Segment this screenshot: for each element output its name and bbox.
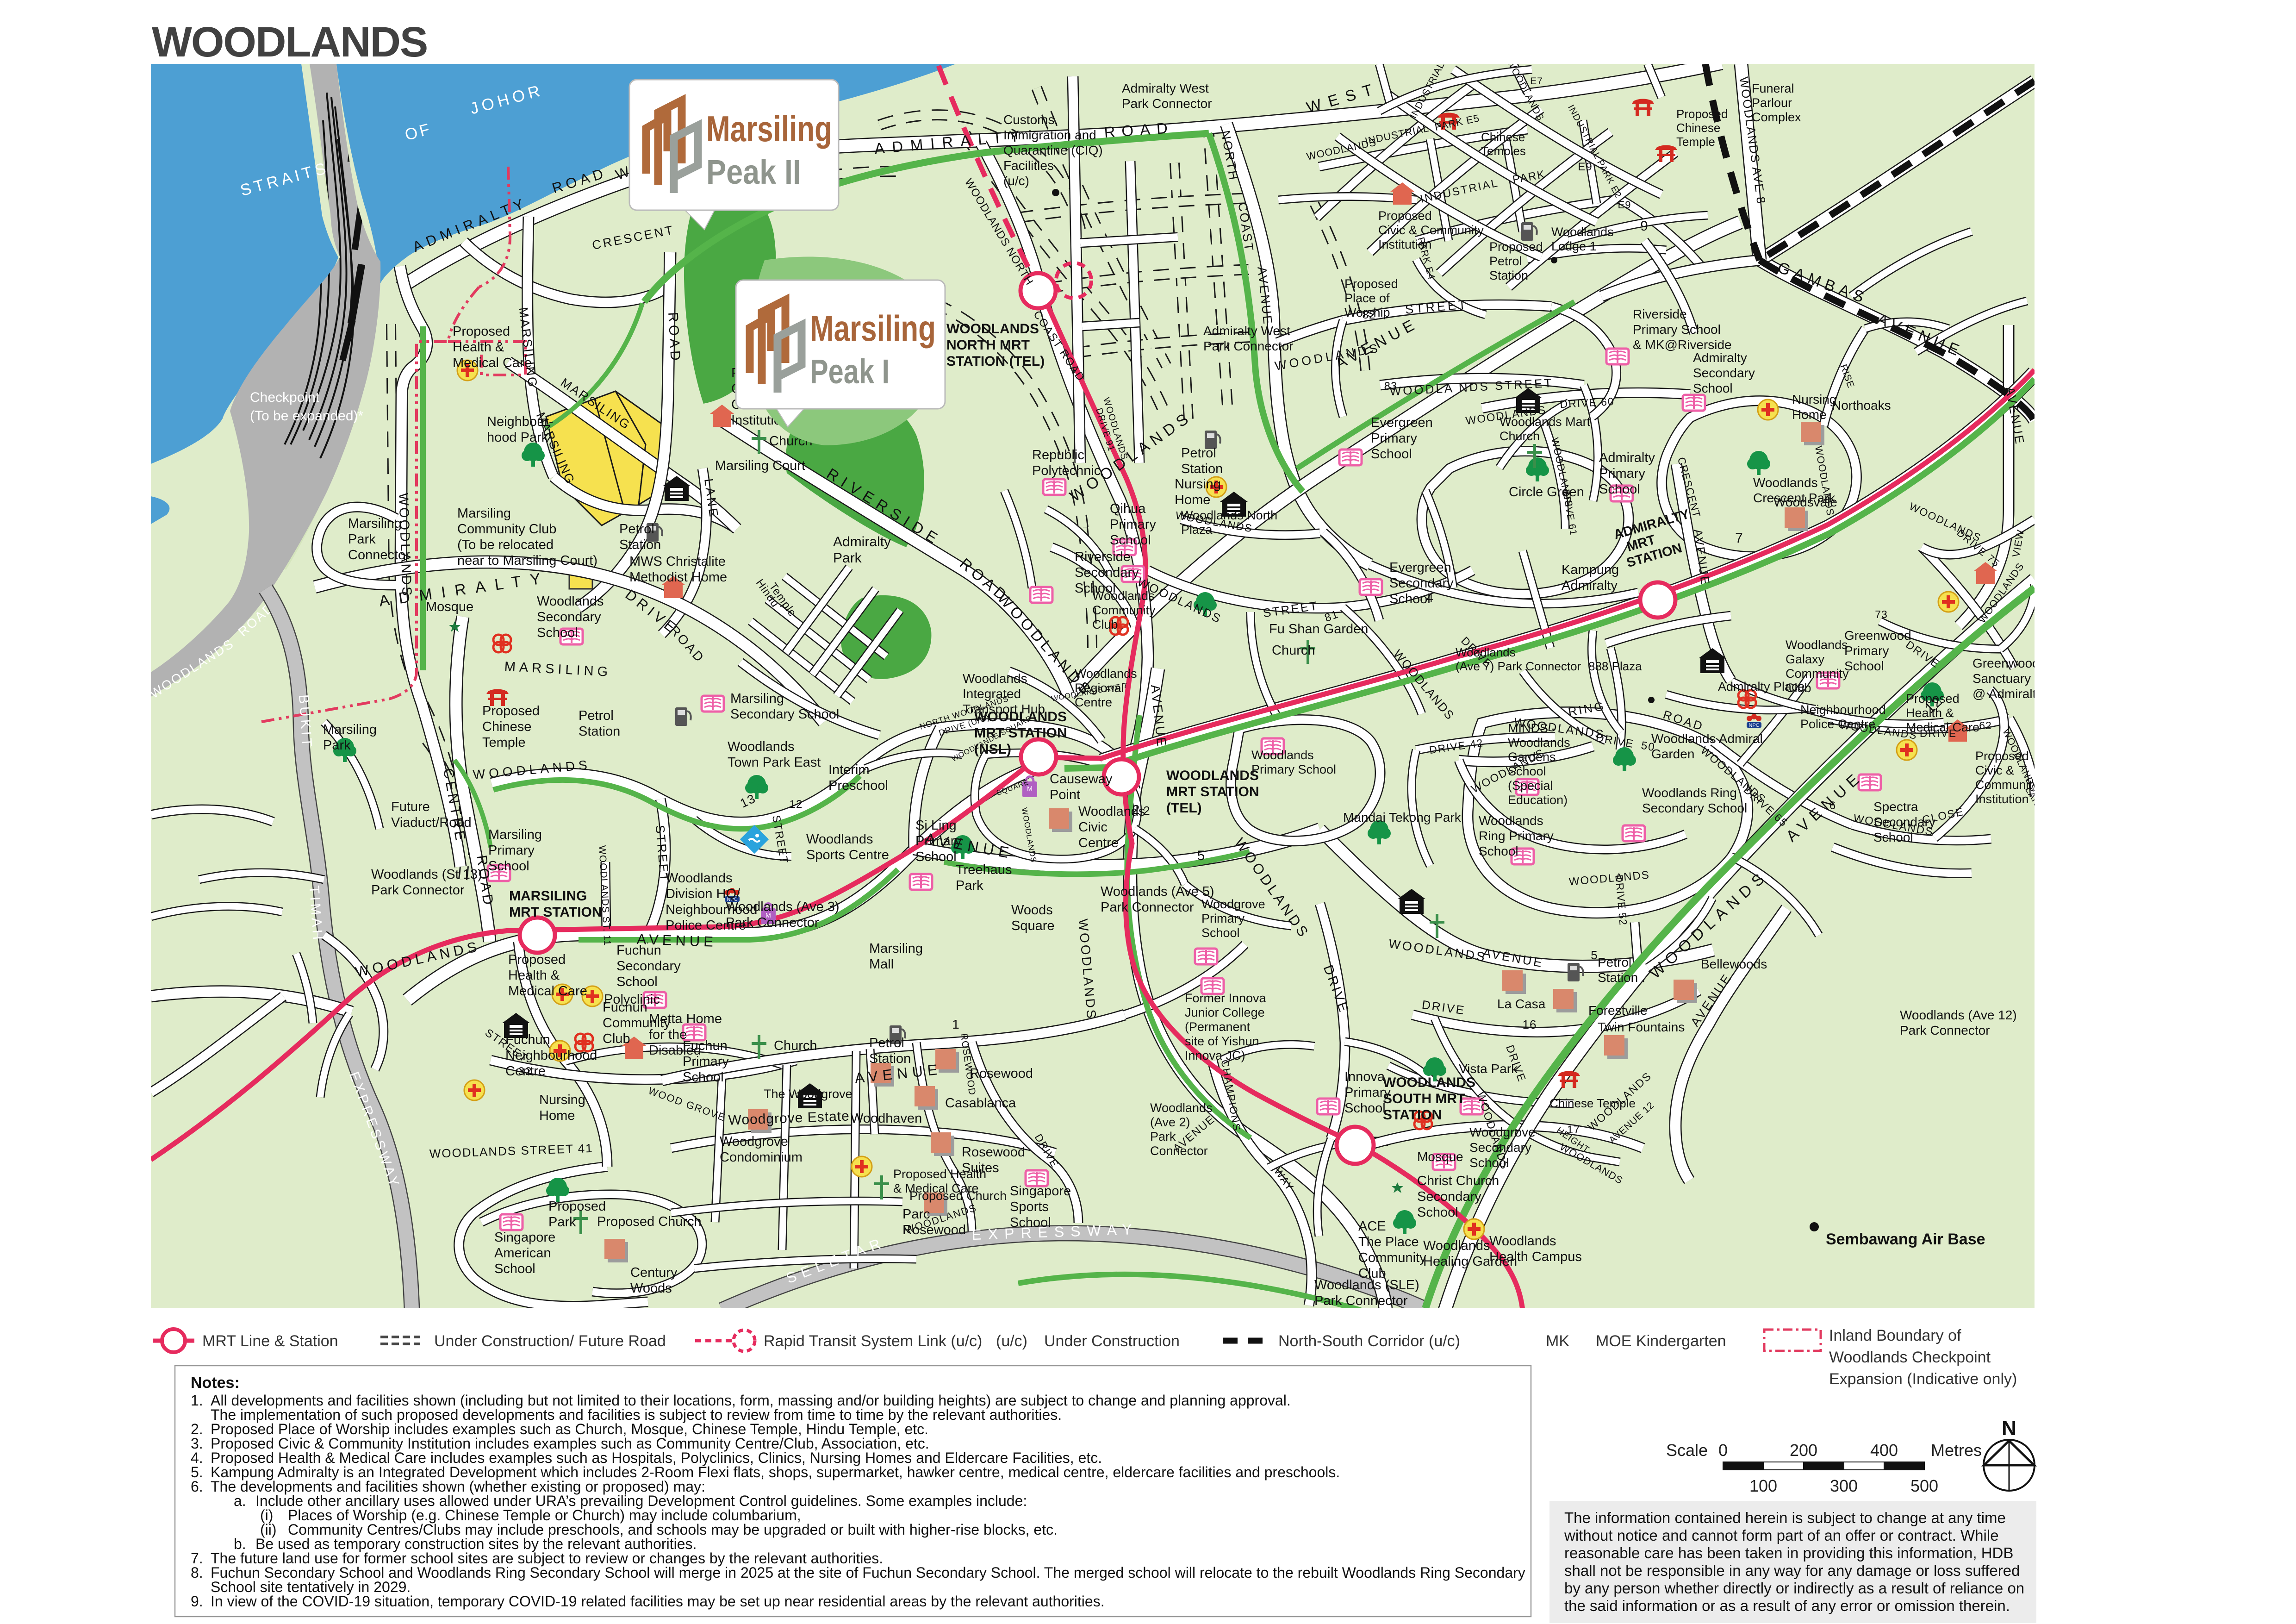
svg-text:FuchunPrimarySchool: FuchunPrimarySchool <box>683 1038 729 1085</box>
svg-text:Mosque: Mosque <box>426 600 473 614</box>
svg-text:NPC: NPC <box>1748 723 1759 728</box>
svg-text:Notes:: Notes: <box>191 1374 240 1392</box>
svg-text:Proposed Church: Proposed Church <box>909 1189 1007 1203</box>
svg-text:Peak II: Peak II <box>706 153 801 191</box>
svg-text:Under Construction: Under Construction <box>1044 1332 1180 1350</box>
svg-text:62: 62 <box>1979 719 1992 731</box>
svg-text:The information contained here: The information contained herein is subj… <box>1564 1509 2006 1526</box>
svg-text:888 Plaza: 888 Plaza <box>1588 659 1642 673</box>
svg-text:Inland Boundary of: Inland Boundary of <box>1829 1327 1961 1344</box>
svg-text:WOODLANDS: WOODLANDS <box>152 19 427 66</box>
svg-text:5: 5 <box>1591 948 1598 962</box>
svg-text:Mosque: Mosque <box>1417 1149 1463 1164</box>
svg-text:In view of the COVID-19 situat: In view of the COVID-19 situation, tempo… <box>211 1593 1105 1610</box>
svg-text:12: 12 <box>790 798 803 811</box>
svg-text:reasonable care has been taken: reasonable care has been taken in provid… <box>1564 1544 2013 1562</box>
svg-text:(u/c): (u/c) <box>996 1332 1027 1350</box>
svg-text:shall not be responsible in an: shall not be responsible in any way for … <box>1564 1562 2020 1579</box>
svg-text:200: 200 <box>1790 1441 1817 1460</box>
svg-text:73: 73 <box>1875 608 1888 620</box>
svg-text:MRT Line & Station: MRT Line & Station <box>202 1332 338 1350</box>
svg-text:ROAD: ROAD <box>665 312 683 363</box>
svg-text:83: 83 <box>1384 380 1398 393</box>
svg-text:Mandai Tekong Park: Mandai Tekong Park <box>1343 810 1462 824</box>
svg-text:Chinese Temple: Chinese Temple <box>1549 1096 1636 1110</box>
svg-text:La Casa: La Casa <box>1497 997 1546 1011</box>
svg-text:8.: 8. <box>191 1564 203 1581</box>
svg-text:300: 300 <box>1830 1476 1858 1495</box>
svg-text:E9: E9 <box>1618 199 1631 211</box>
svg-text:MOE Kindergarten: MOE Kindergarten <box>1596 1332 1726 1350</box>
svg-text:Casablanca: Casablanca <box>945 1096 1016 1111</box>
svg-text:Si LingPrimarySchool: Si LingPrimarySchool <box>915 818 962 864</box>
svg-text:Expansion (Indicative only): Expansion (Indicative only) <box>1829 1370 2017 1388</box>
svg-text:Twin Fountains: Twin Fountains <box>1598 1020 1685 1034</box>
svg-text:Woodhaven: Woodhaven <box>851 1111 922 1126</box>
svg-text:0: 0 <box>1718 1441 1728 1460</box>
svg-text:Northoaks: Northoaks <box>1832 398 1891 412</box>
svg-text:Bellewoods: Bellewoods <box>1701 957 1767 971</box>
svg-text:Church: Church <box>1272 643 1315 658</box>
svg-text:N: N <box>2002 1417 2016 1440</box>
svg-text:E7: E7 <box>1530 76 1543 87</box>
svg-text:7: 7 <box>1735 531 1743 546</box>
svg-text:500: 500 <box>1910 1476 1938 1495</box>
svg-text:ChineseTemples: ChineseTemples <box>1481 130 1526 158</box>
svg-text:North-South Corridor (u/c): North-South Corridor (u/c) <box>1278 1332 1460 1350</box>
svg-text:Rosewood: Rosewood <box>970 1066 1033 1081</box>
svg-text:Rapid Transit System Link (u/c: Rapid Transit System Link (u/c) <box>764 1332 982 1350</box>
svg-text:NeighbourhoodPolice Centre: NeighbourhoodPolice Centre <box>1800 703 1886 731</box>
svg-text:Under Construction/ Future Roa: Under Construction/ Future Road <box>434 1332 666 1350</box>
svg-text:Sembawang Air Base: Sembawang Air Base <box>1826 1230 1985 1248</box>
svg-text:100: 100 <box>1749 1476 1777 1495</box>
svg-text:by any person whether directly: by any person whether directly or indire… <box>1564 1580 2024 1597</box>
svg-text:without notice and cannot form: without notice and cannot form part of a… <box>1564 1527 1999 1544</box>
svg-text:17: 17 <box>1567 1124 1580 1136</box>
svg-text:Metres: Metres <box>1931 1441 1982 1460</box>
svg-text:Vista Park: Vista Park <box>1459 1062 1518 1076</box>
svg-text:MK: MK <box>1546 1332 1569 1350</box>
svg-text:Peak I: Peak I <box>810 352 890 391</box>
svg-text:Marsiling Court: Marsiling Court <box>715 458 805 473</box>
svg-text:Scale: Scale <box>1666 1441 1708 1460</box>
svg-text:Fu Shan Garden: Fu Shan Garden <box>1269 622 1368 637</box>
svg-text:9.: 9. <box>191 1593 203 1610</box>
svg-text:Proposed Church: Proposed Church <box>597 1214 702 1229</box>
svg-text:1.: 1. <box>191 1392 203 1409</box>
svg-text:the said information or as a r: the said information or as a result of a… <box>1564 1597 2010 1614</box>
svg-text:9: 9 <box>1640 219 1649 234</box>
svg-text:400: 400 <box>1870 1441 1898 1460</box>
svg-text:The Woodgrove: The Woodgrove <box>764 1087 852 1101</box>
svg-text:Woodlands Checkpoint: Woodlands Checkpoint <box>1829 1349 1991 1366</box>
svg-text:E9: E9 <box>1578 161 1592 173</box>
svg-text:1: 1 <box>952 1017 959 1031</box>
svg-text:5: 5 <box>1197 848 1205 863</box>
svg-text:Marsiling: Marsiling <box>706 108 832 149</box>
svg-text:16: 16 <box>1523 1018 1537 1031</box>
svg-text:Forestville: Forestville <box>1588 1003 1648 1018</box>
svg-text:a.: a. <box>234 1493 246 1509</box>
svg-text:Church: Church <box>774 1038 817 1053</box>
svg-text:Circle Green: Circle Green <box>1509 485 1584 500</box>
svg-text:6.: 6. <box>191 1478 203 1495</box>
svg-text:Marsiling: Marsiling <box>810 308 936 349</box>
